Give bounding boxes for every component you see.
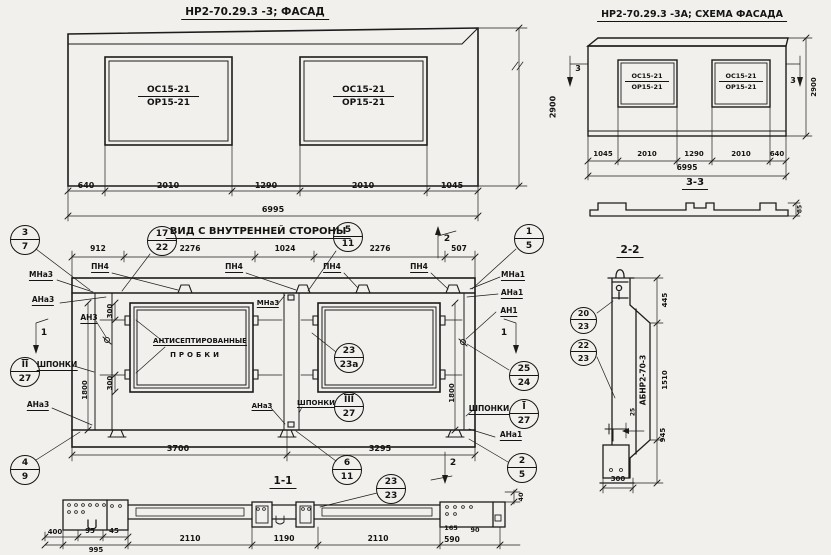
balloon-top: 20 <box>571 308 596 320</box>
dim-1800-right: 1800 <box>448 383 456 402</box>
dim-total-6995: 6995 <box>262 205 284 214</box>
inner-hinge-ticks <box>100 320 462 375</box>
balloon-bottom: 7 <box>11 240 39 253</box>
dim-1290: 1290 <box>255 181 277 190</box>
balloon-III-27: III 27 <box>334 392 364 422</box>
dim-2276: 2276 <box>180 245 201 254</box>
balloon-top: 22 <box>571 340 596 352</box>
dim-1800-left: 1800 <box>81 380 89 399</box>
balloon-3-7: 3 7 <box>10 225 40 255</box>
balloon-2-5: 2 5 <box>507 453 537 483</box>
dim-95: 95 <box>85 527 95 535</box>
window-series: ОС15-21 <box>719 72 763 82</box>
dim-1024: 1024 <box>275 245 296 254</box>
balloon-top: 3 <box>11 226 39 240</box>
drawing-linework <box>0 0 831 555</box>
balloon-top: II <box>11 358 39 372</box>
inner-hinges <box>125 295 445 427</box>
label-ana1: АНа1 <box>500 431 522 441</box>
label-ana1: АНа1 <box>501 289 523 299</box>
balloon-bottom: 27 <box>335 407 363 420</box>
balloon-top: 1 <box>515 225 543 239</box>
balloon-bottom: 22 <box>148 241 176 254</box>
window-frame-series: ОР15-21 <box>625 82 669 91</box>
dim-45: 45 <box>109 527 119 535</box>
dim-590: 590 <box>444 536 460 545</box>
section-2-2-title: 2-2 <box>617 244 644 258</box>
label-shponki-left: ШПОНКИ <box>37 361 78 371</box>
balloon-top: 23 <box>377 475 405 489</box>
balloon-bottom: 5 <box>508 468 536 481</box>
panel-mark-abnr2-70-3: АБНР2-70-3 <box>639 355 648 405</box>
balloon-top: 4 <box>11 456 39 470</box>
window-frame-series: ОР15-21 <box>138 97 199 108</box>
dim-2276: 2276 <box>370 245 391 254</box>
balloon-17-22: 17 22 <box>147 226 177 256</box>
section-3-3-title: 3-3 <box>682 177 708 190</box>
balloon-bottom: 27 <box>11 372 39 385</box>
scheme-title: НР2-70.29.3 -3А; СХЕМА ФАСАДА <box>597 9 787 22</box>
dim-25: 25 <box>630 408 637 416</box>
dim-640: 640 <box>78 181 95 190</box>
section-1-1-title: 1-1 <box>270 475 297 489</box>
dim-1045: 1045 <box>593 150 612 158</box>
dim-90: 90 <box>470 527 479 534</box>
balloon-bottom: 23 <box>377 489 405 502</box>
dim-2010: 2010 <box>637 150 656 158</box>
label-antiseptic-plugs-2: ПРОБКИ <box>170 351 222 359</box>
section-mark-2-bottom: 2 <box>450 458 456 468</box>
dim-3295: 3295 <box>369 444 391 453</box>
section-mark-3-right: 3 <box>790 76 796 85</box>
dim-2010: 2010 <box>352 181 374 190</box>
inner-view-title: ВИД С ВНУТРЕННЕЙ СТОРОНЫ <box>166 226 351 239</box>
facade-title: НР2-70.29.3 -3; ФАСАД <box>181 6 329 20</box>
window-series: ОС15-21 <box>138 85 199 97</box>
arrowheads <box>33 77 803 484</box>
window-frame-series: ОР15-21 <box>333 97 394 108</box>
balloon-1-5: 1 5 <box>514 224 544 254</box>
dim-1510: 1510 <box>661 370 669 389</box>
balloon-bottom: 24 <box>510 376 538 389</box>
section-1-1-profile <box>63 500 505 530</box>
label-pn4: ПН4 <box>410 263 428 273</box>
balloon-top: 5 <box>334 223 362 237</box>
inner-frames <box>95 293 464 430</box>
balloon-bottom: 27 <box>510 414 538 427</box>
dim-400: 400 <box>48 528 63 536</box>
balloon-23-23: 23 23 <box>376 474 406 504</box>
balloon-23-23a: 23 23а <box>334 343 364 373</box>
balloon-bottom: 11 <box>333 470 361 483</box>
dim-2110: 2110 <box>180 535 201 544</box>
label-pn4: ПН4 <box>225 263 243 273</box>
balloon-bottom: 11 <box>334 237 362 250</box>
dim-445: 445 <box>661 293 669 308</box>
label-antiseptic-plugs-1: АНТИСЕПТИРОВАННЫЕ <box>153 337 247 346</box>
balloon-4-9: 4 9 <box>10 455 40 485</box>
balloon-top: 23 <box>335 344 363 358</box>
dim-507: 507 <box>451 245 467 254</box>
balloon-bottom: 23 <box>571 352 596 363</box>
label-shponki-right: ШПОНКИ <box>469 405 510 415</box>
dim-912: 912 <box>90 245 106 254</box>
balloon-bottom: 9 <box>11 470 39 483</box>
window-series: ОС15-21 <box>625 72 669 82</box>
section-mark-3-left: 3 <box>575 64 581 73</box>
dim-945: 945 <box>659 428 667 443</box>
dim-640: 640 <box>770 150 785 158</box>
section-mark-1-right: 1 <box>501 328 507 338</box>
balloon-5-11: 5 11 <box>333 222 363 252</box>
dim-300-top: 300 <box>106 304 114 319</box>
inner-bottom-keys <box>108 430 464 437</box>
window-frame-series: ОР15-21 <box>719 82 763 91</box>
balloon-top: III <box>335 393 363 407</box>
label-shponki-mid: ШПОНКИ <box>297 399 335 408</box>
dim-2010: 2010 <box>731 150 750 158</box>
facade-window-mark-1: ОС15-21 ОР15-21 <box>138 85 199 108</box>
balloon-top: I <box>510 400 538 414</box>
balloon-top: 17 <box>148 227 176 241</box>
dim-height-2900: 2900 <box>549 96 558 118</box>
balloon-bottom: 5 <box>515 239 543 252</box>
label-ana3: АНа3 <box>27 401 49 411</box>
balloon-bottom: 23 <box>571 320 596 331</box>
section-3-3-profile <box>590 203 788 216</box>
balloon-top: 25 <box>510 362 538 376</box>
dim-height-2900: 2900 <box>810 77 818 96</box>
dim-300: 300 <box>611 475 626 483</box>
balloon-top: 2 <box>508 454 536 468</box>
label-mna3: МНа3 <box>257 299 279 308</box>
balloon-bottom: 23а <box>335 358 363 371</box>
facade-outline <box>68 28 478 186</box>
dim-40: 40 <box>517 492 525 501</box>
dim-300-bottom: 300 <box>106 376 114 391</box>
facade-window-mark-2: ОС15-21 ОР15-21 <box>333 85 394 108</box>
balloon-6-11: 6 11 <box>332 455 362 485</box>
dim-1190: 1190 <box>274 535 295 544</box>
scheme-window-mark-1: ОС15-21 ОР15-21 <box>625 72 669 91</box>
label-ana3: АНа3 <box>252 402 273 411</box>
balloon-20-23: 20 23 <box>570 307 597 334</box>
dim-profile-85: 85 <box>797 205 804 213</box>
label-pn4: ПН4 <box>323 263 341 273</box>
dim-2110: 2110 <box>368 535 389 544</box>
blueprint-sheet: НР2-70.29.3 -3; ФАСАД ОС15-21 ОР15-21 ОС… <box>0 0 831 555</box>
label-an3: АН3 <box>80 314 97 324</box>
balloon-22-23: 22 23 <box>570 339 597 366</box>
balloon-top: 6 <box>333 456 361 470</box>
inner-top-keys <box>178 285 460 293</box>
label-mna1: МНа1 <box>501 271 525 281</box>
section-mark-2-top: 2 <box>444 234 450 244</box>
dim-995: 995 <box>89 546 104 554</box>
dim-165: 165 <box>444 525 458 532</box>
scheme-window-mark-2: ОС15-21 ОР15-21 <box>719 72 763 91</box>
balloon-I-27: I 27 <box>509 399 539 429</box>
dim-total-6995: 6995 <box>677 164 698 173</box>
dim-2010: 2010 <box>157 181 179 190</box>
label-mna3: МНа3 <box>29 271 53 281</box>
section-mark-1-left: 1 <box>41 328 47 338</box>
balloon-II-27: II 27 <box>10 357 40 387</box>
dim-1290: 1290 <box>684 150 703 158</box>
label-an1: АН1 <box>500 307 517 317</box>
dim-3700: 3700 <box>167 444 189 453</box>
window-series: ОС15-21 <box>333 85 394 97</box>
label-pn4: ПН4 <box>91 263 109 273</box>
dim-1045: 1045 <box>441 181 463 190</box>
label-ana3: АНа3 <box>32 296 54 306</box>
balloon-25-24: 25 24 <box>509 361 539 391</box>
